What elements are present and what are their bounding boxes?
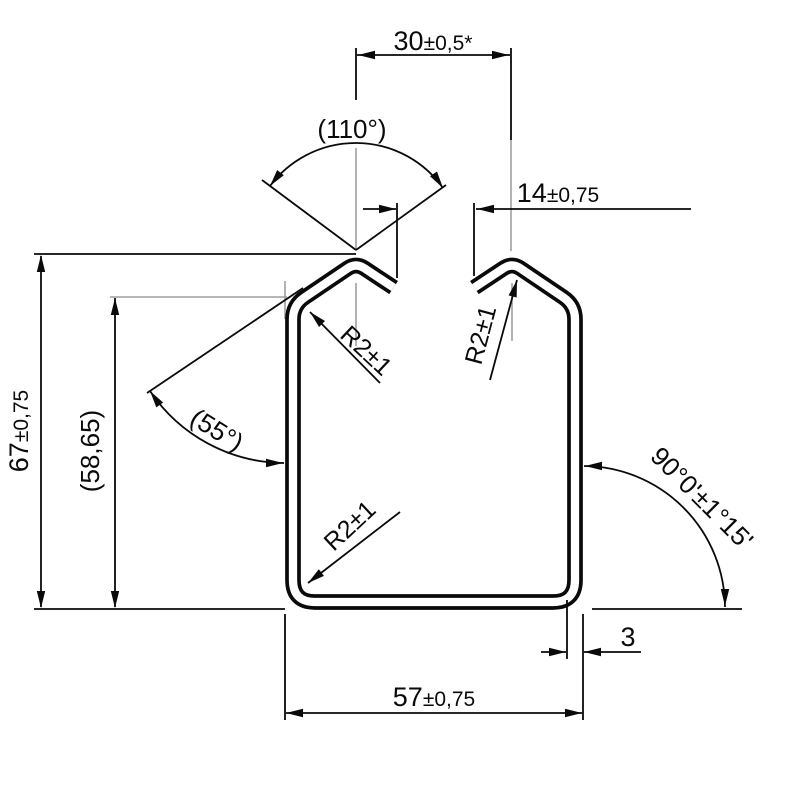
profile-cross-section-drawing: 30±0,5* (110°) 14±0,75 67±0,75 (58,65) (… [0,0,797,809]
dim-side-height-text: (58,65) [75,410,105,492]
dim-thickness-text: 3 [620,622,635,652]
technical-drawing-page: 30±0,5* (110°) 14±0,75 67±0,75 (58,65) (… [0,0,797,809]
dim-slot-angle-text: (110°) [317,114,386,144]
